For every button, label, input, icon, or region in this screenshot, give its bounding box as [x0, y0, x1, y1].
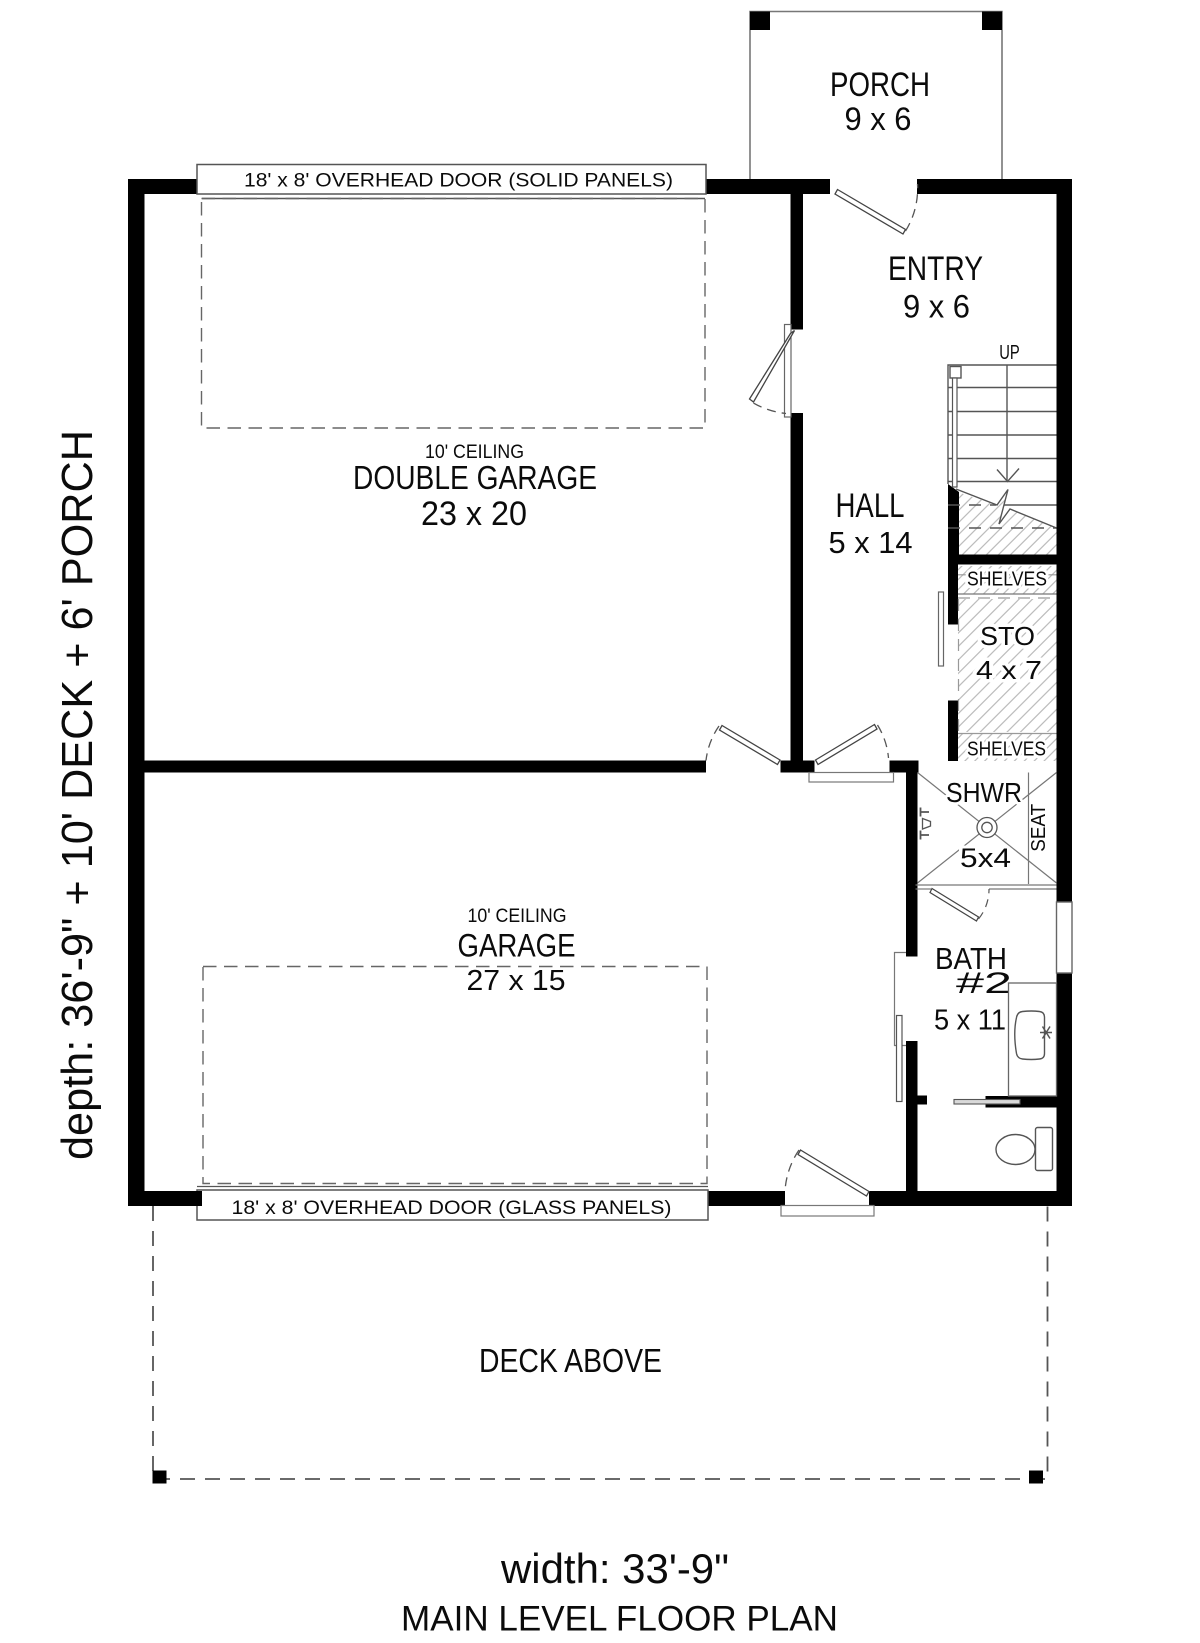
svg-text:GARAGE: GARAGE — [458, 928, 576, 964]
svg-text:UP: UP — [999, 342, 1020, 364]
svg-text:DOUBLE GARAGE: DOUBLE GARAGE — [353, 459, 597, 496]
svg-text:5 x 11: 5 x 11 — [934, 1005, 1006, 1037]
svg-text:5 x 14: 5 x 14 — [829, 525, 913, 560]
svg-text:5x4: 5x4 — [960, 843, 1011, 873]
svg-text:PORCH: PORCH — [830, 66, 930, 104]
svg-text:SHELVES: SHELVES — [967, 739, 1046, 761]
svg-text:27 x 15: 27 x 15 — [467, 965, 566, 997]
svg-text:9 x 6: 9 x 6 — [903, 289, 970, 325]
svg-text:10' CEILING: 10' CEILING — [468, 906, 567, 927]
svg-text:DECK ABOVE: DECK ABOVE — [479, 1342, 662, 1379]
svg-text:ENTRY: ENTRY — [888, 250, 983, 288]
svg-text:width: 33'-9": width: 33'-9" — [500, 1545, 729, 1592]
svg-text:18' x 8' OVERHEAD DOOR (GLASS: 18' x 8' OVERHEAD DOOR (GLASS PANELS) — [232, 1197, 672, 1219]
svg-text:HALL: HALL — [836, 487, 905, 525]
svg-text:SHELVES: SHELVES — [967, 569, 1047, 591]
svg-text:STO: STO — [980, 621, 1035, 651]
svg-text:#2: #2 — [956, 967, 1012, 1000]
svg-text:23 x 20: 23 x 20 — [421, 495, 527, 533]
svg-text:MAIN LEVEL FLOOR PLAN: MAIN LEVEL FLOOR PLAN — [401, 1599, 838, 1639]
svg-text:SEAT: SEAT — [1028, 804, 1050, 852]
svg-text:4 x 7: 4 x 7 — [976, 655, 1042, 685]
svg-text:9 x 6: 9 x 6 — [845, 101, 912, 137]
svg-text:SHWR: SHWR — [946, 777, 1022, 808]
svg-text:18' x 8' OVERHEAD DOOR (SOLID: 18' x 8' OVERHEAD DOOR (SOLID PANELS) — [244, 170, 673, 192]
svg-text:depth: 36'-9" + 10' DECK + 6': depth: 36'-9" + 10' DECK + 6' PORCH — [54, 430, 102, 1160]
